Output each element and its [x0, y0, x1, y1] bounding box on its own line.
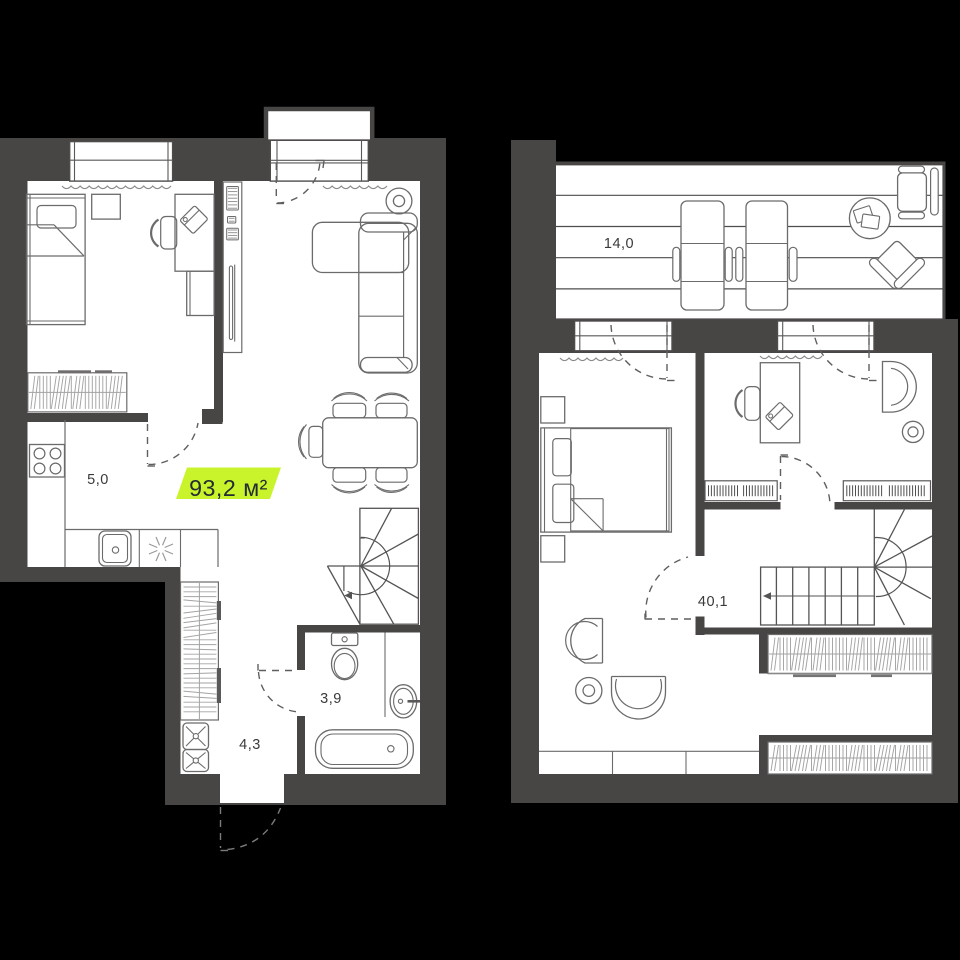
svg-text:40,1: 40,1: [698, 594, 728, 610]
svg-text:3,9: 3,9: [320, 691, 342, 707]
svg-text:93,2 м²: 93,2 м²: [189, 475, 268, 501]
svg-text:4,3: 4,3: [239, 737, 261, 753]
svg-text:5,0: 5,0: [87, 472, 109, 488]
svg-text:14,0: 14,0: [604, 236, 634, 252]
